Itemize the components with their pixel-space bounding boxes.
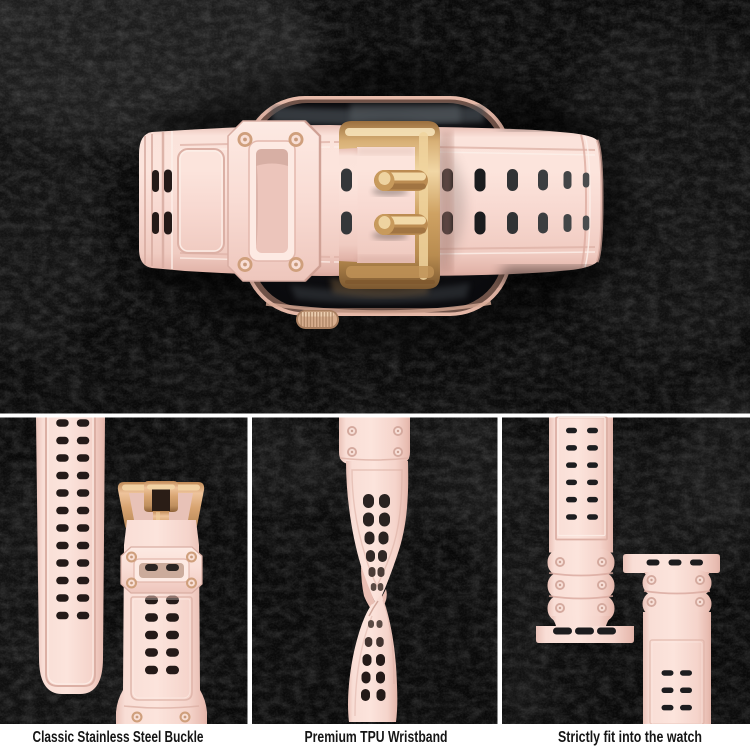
svg-text:Premium TPU Wristband: Premium TPU Wristband <box>305 729 448 746</box>
svg-text:Strictly fit into the watch: Strictly fit into the watch <box>558 729 702 746</box>
svg-text:Classic Stainless Steel Buckle: Classic Stainless Steel Buckle <box>33 729 204 746</box>
